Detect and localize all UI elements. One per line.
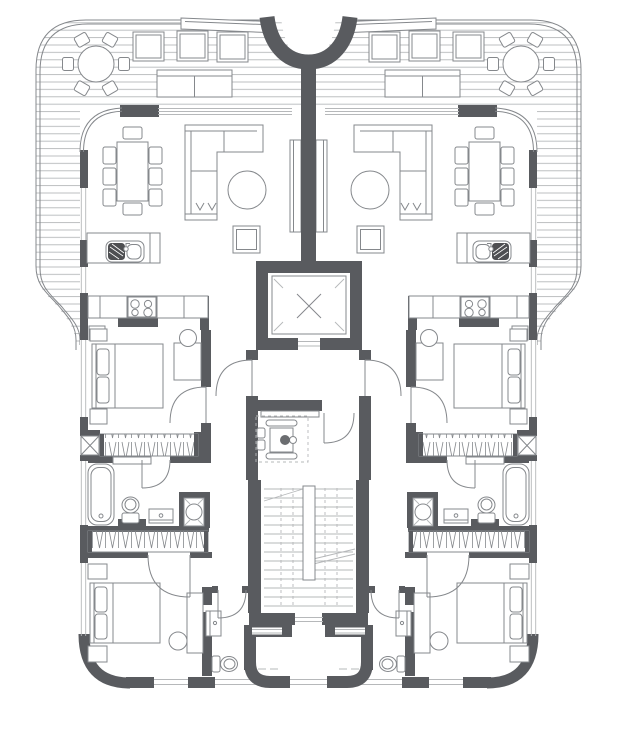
stair-newel: [303, 486, 315, 580]
floor-plan-canvas: [0, 0, 617, 732]
floor-plan-drawing: [0, 0, 617, 732]
